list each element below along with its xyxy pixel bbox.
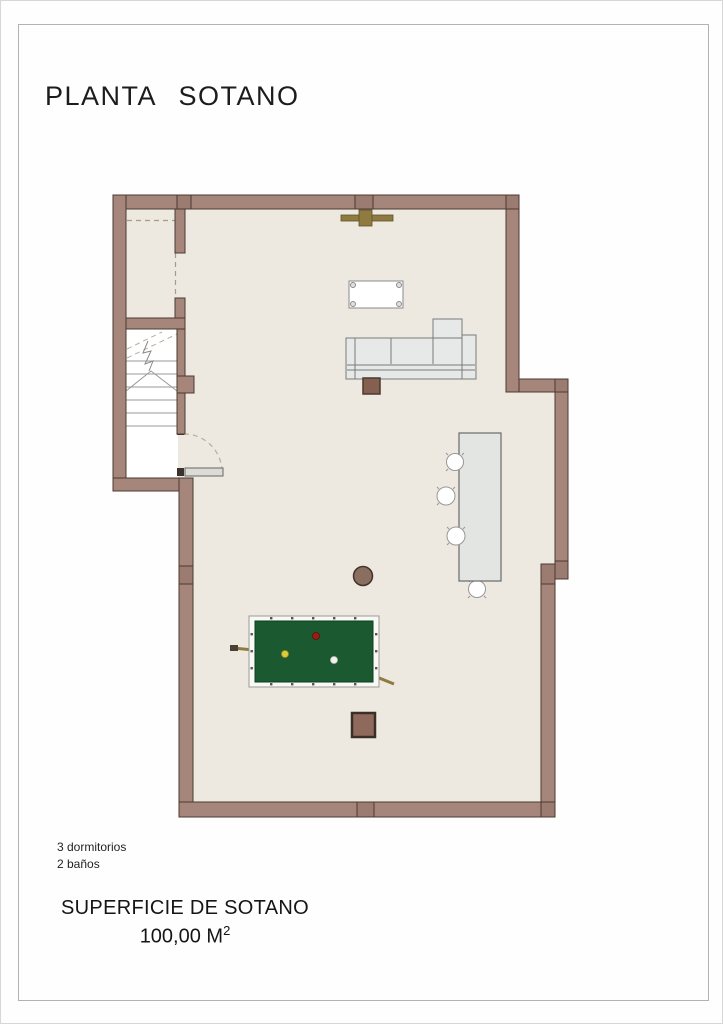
stool-icon (437, 487, 455, 505)
wall-right-middle (555, 379, 568, 579)
stool-icon (447, 527, 465, 545)
surface-superscript: 2 (223, 923, 230, 938)
square-column (352, 713, 375, 737)
program-notes: 3 dormitorios 2 baños (57, 839, 126, 873)
side-table-column (363, 378, 380, 394)
wall-top (113, 195, 519, 209)
sofa-armrest (462, 335, 476, 379)
wall-room-divider (126, 318, 185, 329)
note-bedrooms: 3 dormitorios (57, 839, 126, 856)
surface-label: SUPERFICIE DE SOTANO (41, 897, 329, 920)
surface-value: 100,00 M2 (41, 923, 329, 949)
stool-icon (446, 453, 464, 471)
billiard-felt (255, 621, 373, 682)
billiard-ball-red (313, 633, 320, 640)
sofa-body (346, 338, 476, 379)
bar-table (459, 433, 501, 581)
stool-icon (468, 580, 486, 598)
wall-right-upper (506, 195, 519, 392)
door-hinge-mark (177, 468, 184, 476)
staircase (126, 329, 178, 478)
wall-left-upper (113, 195, 126, 491)
wall-right-lower (541, 564, 555, 817)
billiard-ball-white (331, 657, 338, 664)
surface-block: SUPERFICIE DE SOTANO 100,00 M2 (41, 897, 329, 949)
door-leaf (185, 468, 223, 476)
note-bathrooms: 2 baños (57, 856, 126, 873)
wall-pier (177, 376, 194, 393)
coffee-table-icon (349, 281, 403, 308)
wall-divider-stub-top (175, 209, 185, 253)
drawing-sheet: PLANTA SOTANO (0, 0, 723, 1024)
billiard-ball-yellow (282, 651, 289, 658)
round-column (354, 567, 373, 586)
wall-left-lower (179, 478, 193, 816)
billiard-table-icon (230, 616, 394, 687)
stairwell-floor (126, 329, 178, 478)
